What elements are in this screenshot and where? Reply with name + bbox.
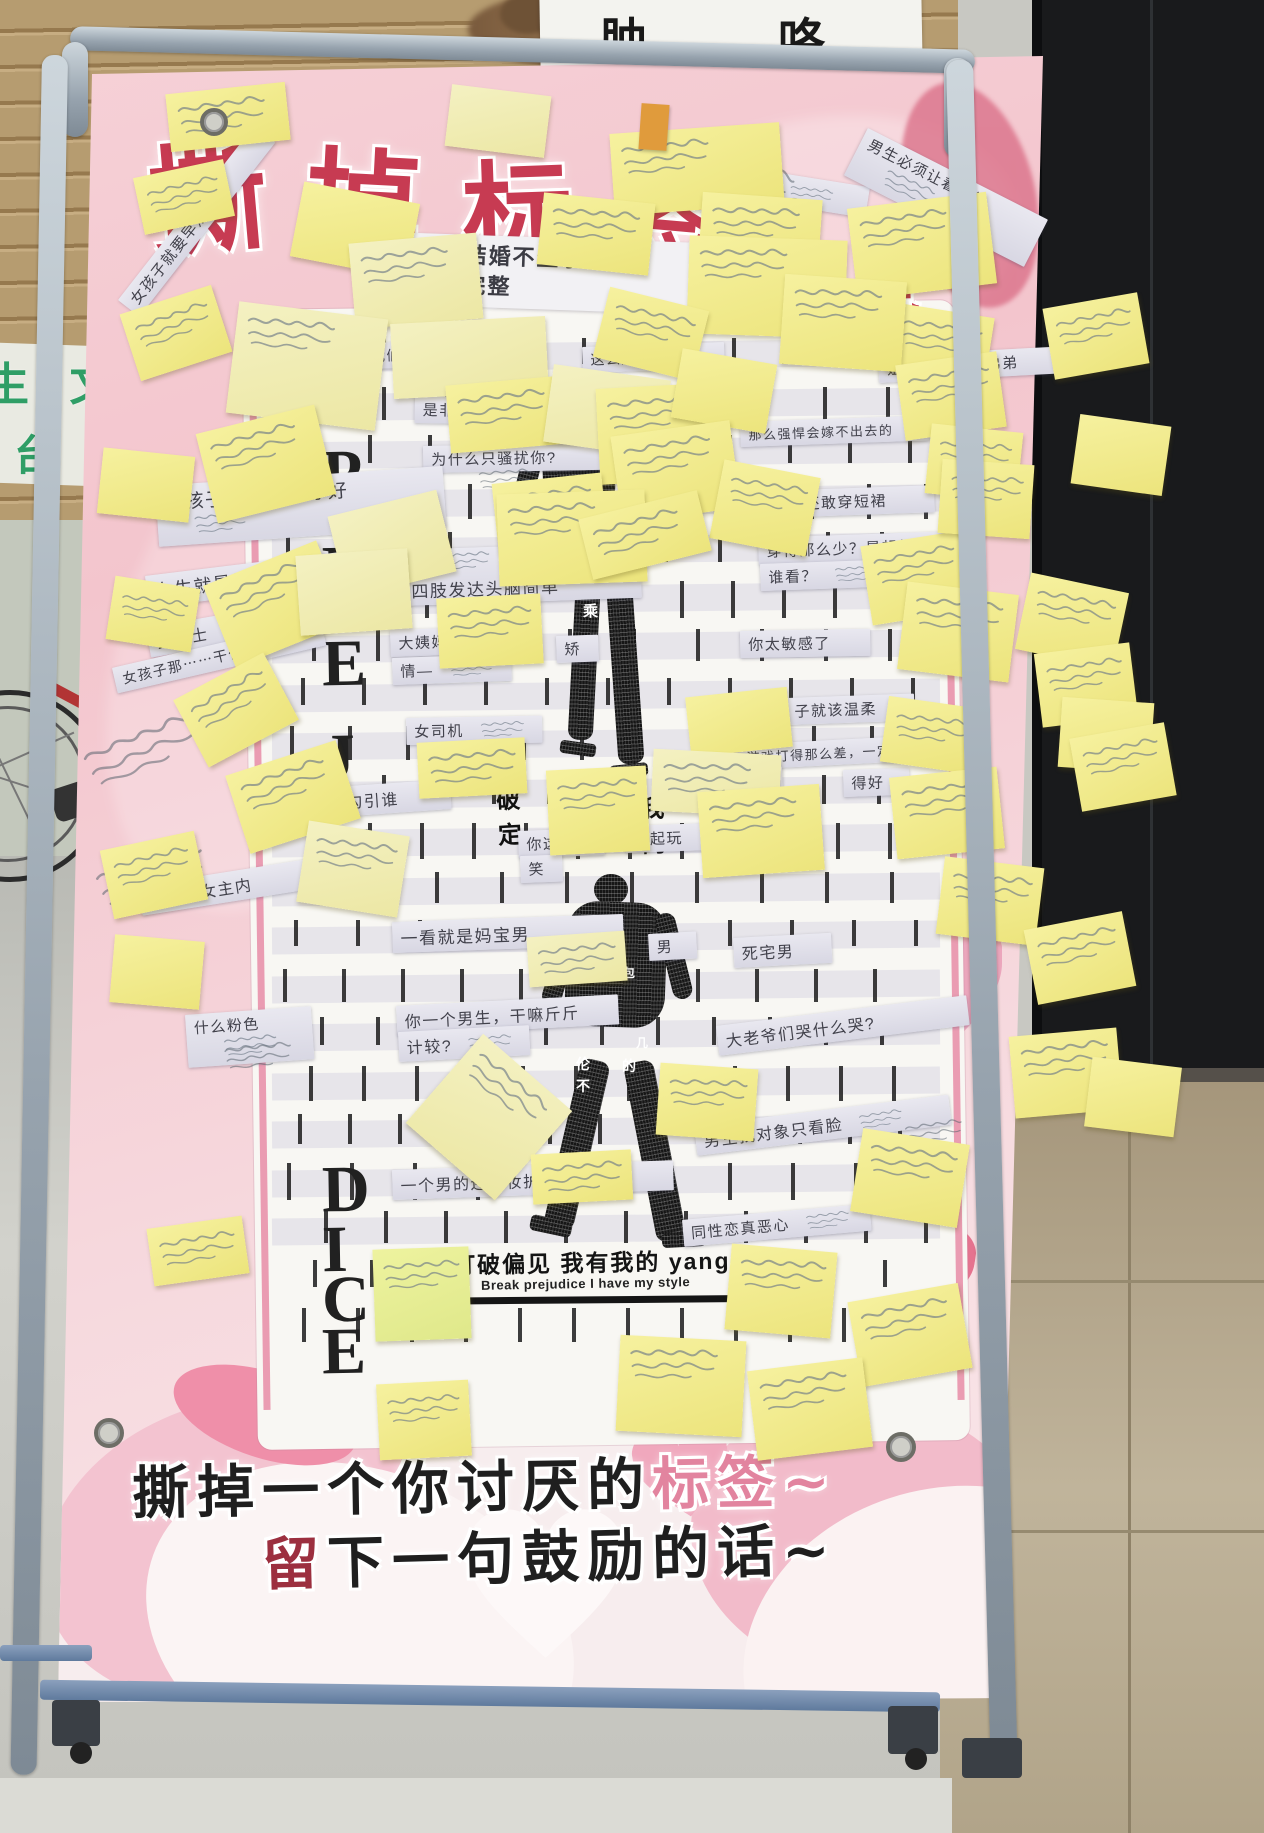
grid-tick bbox=[398, 1114, 402, 1144]
handwriting-squiggle bbox=[706, 792, 801, 838]
sticky-note bbox=[546, 765, 650, 855]
sticky-note bbox=[938, 459, 1035, 539]
grid-tick bbox=[376, 1017, 380, 1045]
sticky-note bbox=[537, 192, 656, 275]
handwriting-squiggle bbox=[539, 1157, 625, 1197]
label-text: 死宅男 bbox=[741, 944, 794, 964]
handwriting-squiggle bbox=[454, 384, 549, 432]
label-text: 你太敏感了 bbox=[748, 635, 831, 653]
photo-scene: 肿，咯 生 文 台 ↙ PREJUDICE bbox=[0, 0, 1264, 1833]
stand-wheel bbox=[70, 1742, 92, 1764]
handwriting-squiggle bbox=[381, 1254, 462, 1297]
vertical-letter: E bbox=[321, 1314, 366, 1391]
grid-tick bbox=[755, 969, 759, 1002]
sticky-note bbox=[417, 737, 528, 799]
grid-tick bbox=[712, 1017, 716, 1045]
label-strip: 男 bbox=[648, 931, 697, 960]
label-strip: 你太敏感了 bbox=[740, 629, 870, 658]
grid-tick bbox=[731, 581, 735, 618]
sticky-note bbox=[436, 593, 544, 668]
grid-tick bbox=[791, 1163, 795, 1200]
grid-tick bbox=[504, 1211, 508, 1243]
grid-tick bbox=[814, 969, 818, 1002]
grid-tick bbox=[888, 823, 892, 859]
banner-grommet bbox=[200, 108, 228, 136]
banner-grommet bbox=[886, 1432, 916, 1462]
figure-glyph: 几 bbox=[636, 1034, 648, 1051]
sticky-note bbox=[526, 931, 627, 988]
label-strip: 死宅男 bbox=[733, 933, 832, 968]
grid-tick bbox=[606, 678, 610, 705]
grid-tick bbox=[362, 1066, 366, 1101]
grid-tick bbox=[415, 1066, 419, 1101]
grid-tick bbox=[624, 1211, 628, 1243]
handwriting-squiggle bbox=[1078, 731, 1164, 784]
figure-glyph: 不 bbox=[576, 1076, 590, 1096]
grid-tick bbox=[368, 435, 372, 463]
sticky-note bbox=[779, 274, 907, 372]
handwriting-squiggle bbox=[470, 720, 534, 739]
grid-tick bbox=[696, 969, 700, 1002]
grid-tick bbox=[630, 872, 634, 903]
grid-tick bbox=[301, 678, 305, 705]
handwriting-squiggle bbox=[626, 1342, 720, 1387]
sticky-note bbox=[897, 582, 1019, 683]
banner-grommet bbox=[94, 1418, 124, 1448]
stand-wheel bbox=[905, 1748, 927, 1770]
handwriting-squiggle bbox=[109, 839, 196, 895]
grid-tick bbox=[728, 1163, 732, 1200]
grid-tick bbox=[294, 920, 298, 946]
handwriting-squiggle bbox=[795, 1209, 860, 1233]
sticky-note bbox=[372, 1246, 471, 1341]
sticky-note bbox=[445, 84, 552, 158]
handwriting-squiggle bbox=[696, 243, 789, 286]
handwriting-squiggle bbox=[665, 1070, 750, 1116]
label-text: 笑 bbox=[528, 861, 545, 879]
grid-tick bbox=[728, 920, 732, 946]
label-text: 子就该温柔 bbox=[794, 701, 877, 721]
handwriting-squiggle bbox=[384, 1387, 462, 1431]
grid-tick bbox=[696, 629, 700, 661]
grid-tick bbox=[598, 1114, 602, 1144]
figure-glyph: 乘 bbox=[583, 600, 598, 621]
handwriting-squiggle bbox=[211, 1039, 305, 1073]
sticky-note bbox=[685, 687, 793, 757]
grid-tick bbox=[890, 872, 894, 903]
label-text: 同性恋真恶心 bbox=[690, 1217, 790, 1243]
label-strip: 笑 bbox=[520, 855, 563, 883]
sticky-note bbox=[97, 447, 195, 522]
grid-tick bbox=[342, 969, 346, 1002]
sticky-note bbox=[109, 934, 205, 1010]
vertical-letter: E bbox=[321, 626, 366, 703]
sticky-note bbox=[697, 784, 825, 878]
grid-tick bbox=[873, 969, 877, 1002]
tile-seam bbox=[1128, 1082, 1131, 1833]
sticky-note bbox=[531, 1149, 633, 1204]
sticky-note bbox=[724, 1244, 837, 1339]
label-text: 谁看？ bbox=[768, 568, 818, 587]
grid-tick bbox=[320, 1017, 324, 1045]
label-text: 矫 bbox=[564, 641, 581, 659]
sticky-note bbox=[1071, 414, 1172, 496]
handwriting-squiggle bbox=[155, 1224, 240, 1275]
bottom-slogan-line2: 留下一句鼓励的话~ bbox=[261, 1504, 839, 1601]
grid-tick bbox=[823, 387, 827, 420]
grid-tick bbox=[287, 1163, 291, 1200]
handwriting-squiggle bbox=[242, 309, 338, 360]
label-text: 情— bbox=[400, 663, 434, 681]
handwriting-squiggle bbox=[310, 829, 401, 882]
grid-tick bbox=[401, 969, 405, 1002]
grid-tick bbox=[384, 1211, 388, 1243]
grid-tick bbox=[283, 969, 287, 1002]
grid-tick bbox=[420, 823, 424, 859]
handwriting-squiggle bbox=[864, 1136, 961, 1190]
grid-tick bbox=[888, 629, 892, 661]
stand-base-bar-left bbox=[0, 1645, 92, 1661]
bottom-line2-black: 下一句鼓励的话~ bbox=[326, 1516, 838, 1596]
sticky-note bbox=[295, 548, 412, 636]
orange-tab-note bbox=[638, 103, 669, 151]
handwriting-squiggle bbox=[357, 242, 452, 290]
floor-curb bbox=[0, 1778, 952, 1833]
grid-tick bbox=[444, 1211, 448, 1243]
figure-glyph: 伦 bbox=[576, 1054, 590, 1074]
grid-tick bbox=[500, 872, 504, 903]
grid-tick bbox=[460, 969, 464, 1002]
grid-tick bbox=[382, 387, 386, 420]
stand-foot bbox=[888, 1706, 938, 1754]
grid-tick bbox=[472, 823, 476, 859]
handwriting-squiggle bbox=[910, 589, 1006, 640]
handwriting-squiggle bbox=[856, 204, 952, 255]
grid-tick bbox=[519, 969, 523, 1002]
sticky-note bbox=[106, 576, 201, 653]
grid-tick bbox=[914, 920, 918, 946]
label-text: 男 bbox=[656, 939, 673, 957]
grid-tick bbox=[760, 872, 764, 903]
grid-tick bbox=[572, 1308, 576, 1342]
handwriting-squiggle bbox=[142, 168, 225, 223]
grid-tick bbox=[836, 823, 840, 859]
sticky-note bbox=[348, 233, 483, 330]
handwriting-squiggle bbox=[1043, 650, 1127, 699]
loose-handwriting-mark bbox=[211, 1039, 305, 1078]
handwriting-squiggle bbox=[736, 1251, 829, 1299]
stand-foot bbox=[962, 1738, 1022, 1778]
grid-tick bbox=[313, 1260, 317, 1287]
grid-tick bbox=[839, 1066, 843, 1101]
handwriting-squiggle bbox=[445, 601, 535, 646]
grid-tick bbox=[545, 678, 549, 705]
grid-tick bbox=[565, 872, 569, 903]
label-text: 那么强悍会嫁不出去的 bbox=[748, 423, 893, 443]
grid-tick bbox=[518, 1308, 522, 1342]
sticky-note bbox=[747, 1357, 873, 1460]
handwriting-squiggle bbox=[856, 1292, 954, 1347]
grid-tick bbox=[825, 872, 829, 903]
sticky-note bbox=[850, 1128, 970, 1228]
handwriting-squiggle bbox=[619, 430, 716, 482]
grid-tick bbox=[892, 1066, 896, 1101]
grid-tick bbox=[309, 1066, 313, 1101]
handwriting-squiggle bbox=[756, 1366, 852, 1417]
grid-tick bbox=[356, 920, 360, 946]
label-text: 女司机 bbox=[414, 723, 464, 741]
grid-tick bbox=[852, 920, 856, 946]
label-text: 一看就是妈宝男 bbox=[400, 925, 530, 949]
handwriting-squiggle bbox=[790, 281, 885, 327]
grid-tick bbox=[842, 1308, 846, 1342]
sticky-note bbox=[296, 821, 410, 918]
sticky-note bbox=[1084, 1057, 1182, 1137]
grid-tick bbox=[822, 775, 826, 804]
grid-tick bbox=[883, 1260, 887, 1287]
grid-tick bbox=[786, 1066, 790, 1101]
door-reflection-line bbox=[1150, 0, 1153, 1070]
handwriting-squiggle bbox=[1033, 920, 1123, 975]
label-text: 计较? bbox=[406, 1038, 452, 1057]
handwriting-squiggle bbox=[890, 704, 971, 754]
grid-tick bbox=[680, 1308, 684, 1342]
handwriting-squiggle bbox=[547, 200, 643, 249]
label-text: 得好 bbox=[851, 775, 885, 793]
label-strip: 矫 bbox=[556, 635, 599, 663]
grid-tick bbox=[376, 629, 380, 661]
handwriting-squiggle bbox=[535, 938, 619, 980]
handwriting-squiggle bbox=[723, 468, 811, 523]
sticky-note bbox=[656, 1063, 759, 1142]
handwriting-squiggle bbox=[116, 584, 191, 634]
grid-tick bbox=[298, 1114, 302, 1144]
grid-tick bbox=[680, 581, 684, 618]
grid-tick bbox=[435, 872, 439, 903]
grid-tick bbox=[667, 678, 671, 705]
handwriting-squiggle bbox=[425, 745, 519, 790]
sticky-note bbox=[616, 1335, 747, 1437]
sticky-note bbox=[376, 1380, 472, 1461]
handwriting-squiggle bbox=[1029, 581, 1119, 638]
grid-tick bbox=[695, 872, 699, 903]
figure-glyph: 的 bbox=[622, 1056, 636, 1076]
bottom-line2-red: 留 bbox=[261, 1530, 328, 1599]
handwriting-squiggle bbox=[554, 773, 640, 817]
grid-tick bbox=[348, 1114, 352, 1144]
handwriting-squiggle bbox=[1052, 300, 1138, 353]
grid-tick bbox=[302, 1308, 306, 1342]
stand-foot bbox=[52, 1700, 100, 1746]
